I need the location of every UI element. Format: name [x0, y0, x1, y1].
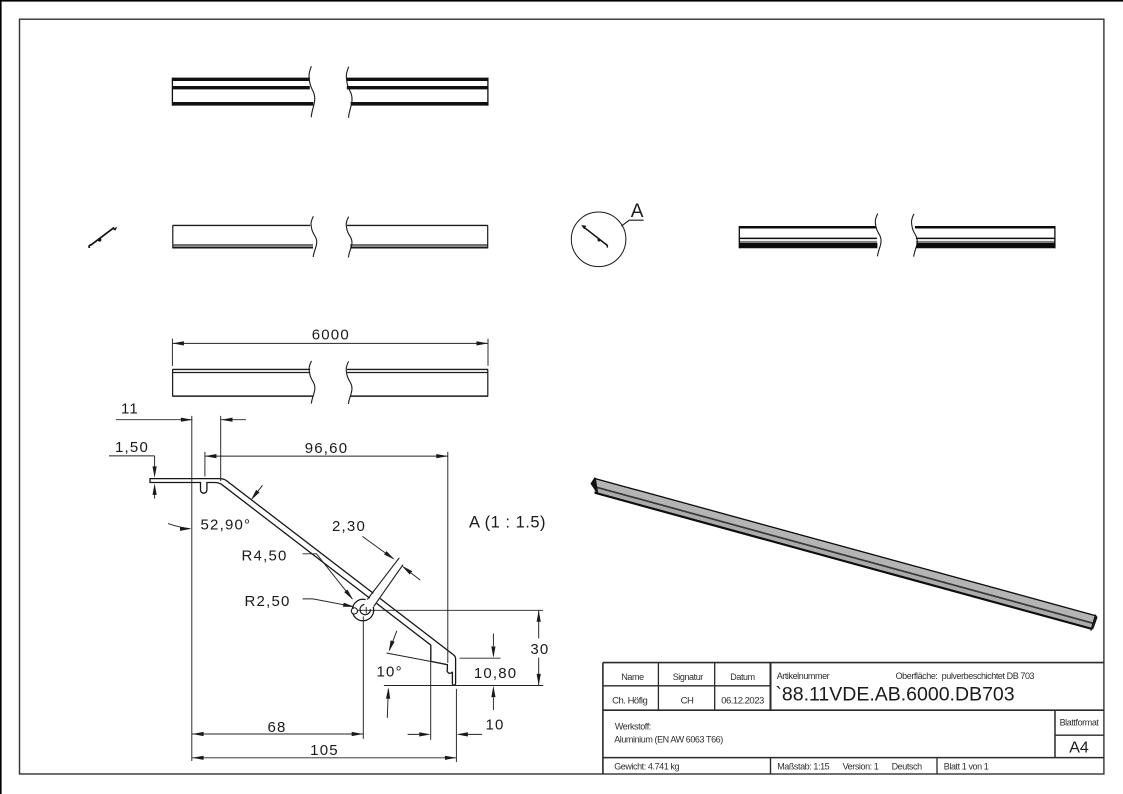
- svg-text:Gewicht: 4.741 kg: Gewicht: 4.741 kg: [614, 761, 679, 771]
- svg-text:96,60: 96,60: [305, 440, 349, 457]
- svg-text:2,30: 2,30: [332, 518, 366, 535]
- svg-text:105: 105: [310, 742, 339, 759]
- svg-text:1,50: 1,50: [115, 439, 149, 456]
- svg-text:11: 11: [121, 401, 139, 418]
- svg-text:A (1 : 1.5): A (1 : 1.5): [469, 513, 546, 531]
- svg-text:Datum: Datum: [730, 672, 754, 682]
- svg-text:10,80: 10,80: [474, 665, 518, 682]
- svg-text:A: A: [631, 201, 644, 222]
- svg-text:`88.11VDE.AB.6000.DB703: `88.11VDE.AB.6000.DB703: [775, 683, 1014, 705]
- svg-text:68: 68: [267, 719, 286, 736]
- svg-text:Name: Name: [621, 672, 644, 682]
- svg-text:CH: CH: [681, 695, 694, 706]
- svg-text:Version: 1: Version: 1: [843, 761, 879, 771]
- svg-text:Werkstoff:: Werkstoff:: [615, 722, 651, 732]
- svg-text:Maßstab: 1:15: Maßstab: 1:15: [777, 761, 829, 771]
- svg-text:6000: 6000: [312, 327, 350, 344]
- svg-text:Aluminium (EN AW 6063 T66): Aluminium (EN AW 6063 T66): [614, 735, 723, 745]
- svg-text:Artikelnummer: Artikelnummer: [777, 671, 830, 681]
- svg-text:R2,50: R2,50: [245, 593, 291, 610]
- svg-text:Signatur: Signatur: [673, 672, 704, 682]
- svg-text:52,90°: 52,90°: [201, 516, 252, 533]
- svg-text:10: 10: [485, 716, 504, 733]
- svg-text:Blatt 1 von 1: Blatt 1 von 1: [944, 761, 989, 771]
- svg-text:A4: A4: [1069, 740, 1089, 757]
- svg-text:06.12.2023: 06.12.2023: [721, 695, 764, 706]
- svg-text:Oberfläche: pulverbeschichtet: Oberfläche: pulverbeschichtet DB 703: [896, 671, 1035, 681]
- svg-text:10°: 10°: [377, 663, 403, 680]
- svg-text:Blattformat: Blattformat: [1060, 718, 1100, 728]
- svg-text:R4,50: R4,50: [242, 547, 288, 564]
- svg-text:30: 30: [530, 641, 549, 658]
- svg-text:Deutsch: Deutsch: [892, 761, 922, 771]
- svg-text:Ch. Höfig: Ch. Höfig: [612, 695, 647, 706]
